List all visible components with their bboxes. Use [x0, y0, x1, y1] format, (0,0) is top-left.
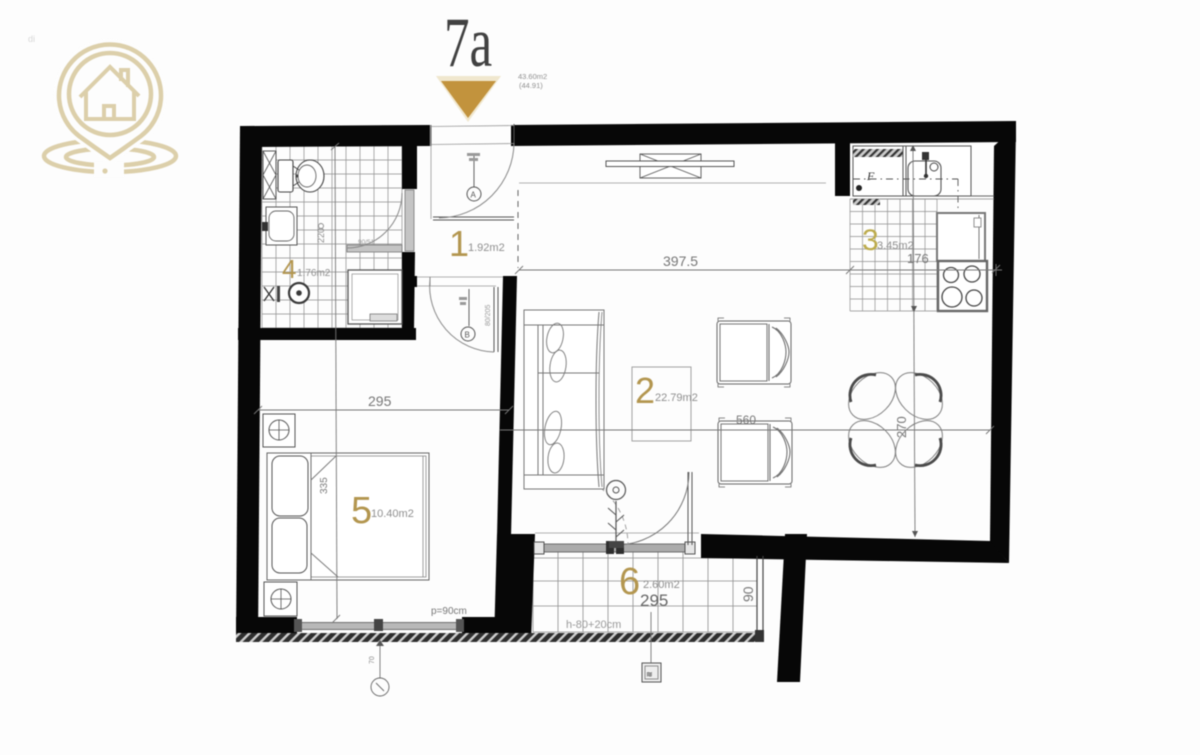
- svg-text:397.5: 397.5: [663, 253, 698, 269]
- svg-text:2: 2: [635, 370, 655, 411]
- svg-text:295: 295: [368, 393, 392, 409]
- svg-text:90/51: 90/51: [358, 239, 375, 246]
- svg-text:1.92m2: 1.92m2: [468, 242, 505, 254]
- svg-text:270: 270: [894, 416, 909, 438]
- svg-text:F: F: [866, 169, 875, 183]
- svg-text:2.60m2: 2.60m2: [643, 579, 680, 591]
- svg-text:B: B: [465, 331, 470, 340]
- svg-text:176: 176: [907, 251, 929, 266]
- svg-text:5: 5: [351, 490, 372, 532]
- svg-text:10.40m2: 10.40m2: [371, 508, 414, 520]
- svg-text:(44.91): (44.91): [519, 81, 543, 90]
- svg-text:560: 560: [736, 413, 756, 427]
- svg-text:335: 335: [319, 477, 330, 494]
- svg-text:1: 1: [449, 223, 469, 264]
- svg-text:80/205: 80/205: [485, 304, 492, 326]
- svg-text:4: 4: [282, 254, 296, 284]
- svg-text:6: 6: [619, 561, 640, 603]
- svg-text:≋: ≋: [646, 670, 653, 679]
- svg-text:1.76m2: 1.76m2: [297, 268, 331, 279]
- svg-text:295: 295: [640, 591, 668, 610]
- svg-text:70: 70: [369, 656, 376, 664]
- svg-text:22.79m2: 22.79m2: [655, 392, 698, 404]
- svg-text:220: 220: [316, 228, 326, 243]
- svg-text:7a: 7a: [444, 4, 492, 82]
- svg-text:di: di: [28, 34, 35, 44]
- svg-text:90: 90: [740, 586, 756, 602]
- svg-text:h-80+20cm: h-80+20cm: [566, 619, 621, 631]
- svg-text:A: A: [471, 191, 477, 200]
- svg-text:43.60m2: 43.60m2: [518, 72, 547, 81]
- svg-text:p=90cm: p=90cm: [431, 606, 467, 617]
